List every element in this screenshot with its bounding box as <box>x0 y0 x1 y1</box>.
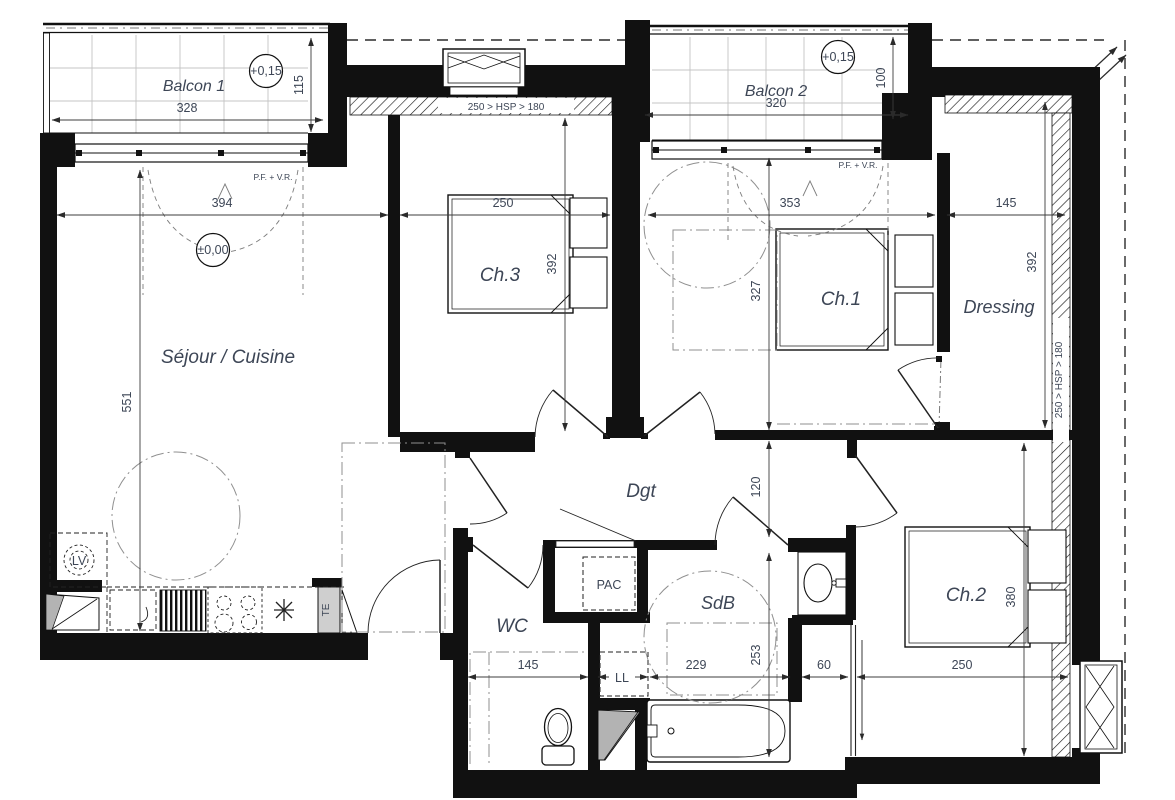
bay-window-ch1 <box>652 141 882 159</box>
ch2-sliding-door <box>851 625 862 756</box>
label-dressing: Dressing <box>963 297 1034 317</box>
pac-closet <box>556 509 636 610</box>
level-sejour: ±0,00 <box>197 243 228 257</box>
turning-circle-sdb <box>644 571 776 703</box>
pac-label: PAC <box>597 578 622 592</box>
dish-rack <box>160 590 206 631</box>
door-stop <box>342 590 357 633</box>
walls <box>40 20 1100 798</box>
sejour-dgt-door <box>470 458 507 524</box>
entrance-door <box>368 560 440 633</box>
dim-sdb-width: 229 <box>686 658 707 672</box>
dim-ch2-depth: 380 <box>1004 587 1018 608</box>
floor-plan-drawing: 250 > HSP > 180 250 > HSP > 180 <box>0 0 1175 800</box>
level-balcon1: +0,15 <box>250 64 282 78</box>
dim-ch2-width: 250 <box>952 658 973 672</box>
te-label: TE <box>321 603 332 616</box>
label-ch1: Ch.1 <box>821 289 861 310</box>
ch2-door <box>855 455 897 527</box>
label-ch3: Ch.3 <box>480 265 521 286</box>
roof-window-ch3 <box>443 49 525 95</box>
dim-sejour-width: 394 <box>212 196 233 210</box>
level-balcon2: +0,15 <box>822 50 854 64</box>
dim-wc-width: 145 <box>518 658 539 672</box>
label-sejour: Séjour / Cuisine <box>161 347 295 368</box>
toilet <box>542 709 574 766</box>
turning-circle-sejour <box>112 452 240 580</box>
hsp-note-top: 250 > HSP > 180 <box>468 102 545 113</box>
dim-dressing-depth: 392 <box>1025 252 1039 273</box>
dim-ch3-width: 250 <box>493 196 514 210</box>
sdb-door <box>715 497 788 545</box>
label-balcon1: Balcon 1 <box>163 78 225 95</box>
wc-door <box>473 545 543 588</box>
dim-ch1-width: 353 <box>780 196 801 210</box>
pfvr-note-2: P.F. + V.R. <box>839 160 878 170</box>
zone-sejour <box>342 443 445 632</box>
window-ch2 <box>1080 661 1122 753</box>
label-balcon2: Balcon 2 <box>745 83 807 100</box>
bay-window-sejour <box>75 144 308 162</box>
dim-ch3-depth: 392 <box>545 254 559 275</box>
dressing-door <box>898 358 941 428</box>
turning-circle-ch1 <box>644 162 770 288</box>
bed-ch3 <box>448 195 607 313</box>
label-ch2: Ch.2 <box>946 585 987 606</box>
cooktop <box>208 587 262 633</box>
dim-sejour-depth: 551 <box>120 392 134 413</box>
duct-sdb <box>598 710 640 760</box>
washbasin <box>798 552 846 615</box>
dim-balcon2-depth: 100 <box>874 68 888 89</box>
dim-ch1-depth: 327 <box>749 281 763 302</box>
dim-dgt-width: 120 <box>749 477 763 498</box>
dim-passage-width: 60 <box>817 658 831 672</box>
balcony-2-railing <box>650 26 932 34</box>
lv-label: LV <box>72 554 87 568</box>
light-point-icon <box>274 599 294 621</box>
floor-plan: 250 > HSP > 180 250 > HSP > 180 <box>0 0 1175 800</box>
ch1-door <box>644 392 715 436</box>
label-wc: WC <box>496 616 528 637</box>
ll-label: LL <box>615 671 629 685</box>
hsp-note-right: 250 > HSP > 180 <box>1054 341 1065 418</box>
sink-cabinet <box>110 590 156 630</box>
dim-balcon1-depth: 115 <box>292 75 306 95</box>
dim-balcon1-width: 328 <box>177 101 198 115</box>
dim-sdb-depth: 253 <box>749 645 763 666</box>
pfvr-note-1: P.F. + V.R. <box>254 172 293 182</box>
ch3-door <box>535 390 608 437</box>
label-sdb: SdB <box>701 593 735 613</box>
dim-dressing-width: 145 <box>996 196 1017 210</box>
duct-kitchen <box>46 594 99 630</box>
label-dgt: Dgt <box>626 481 656 502</box>
